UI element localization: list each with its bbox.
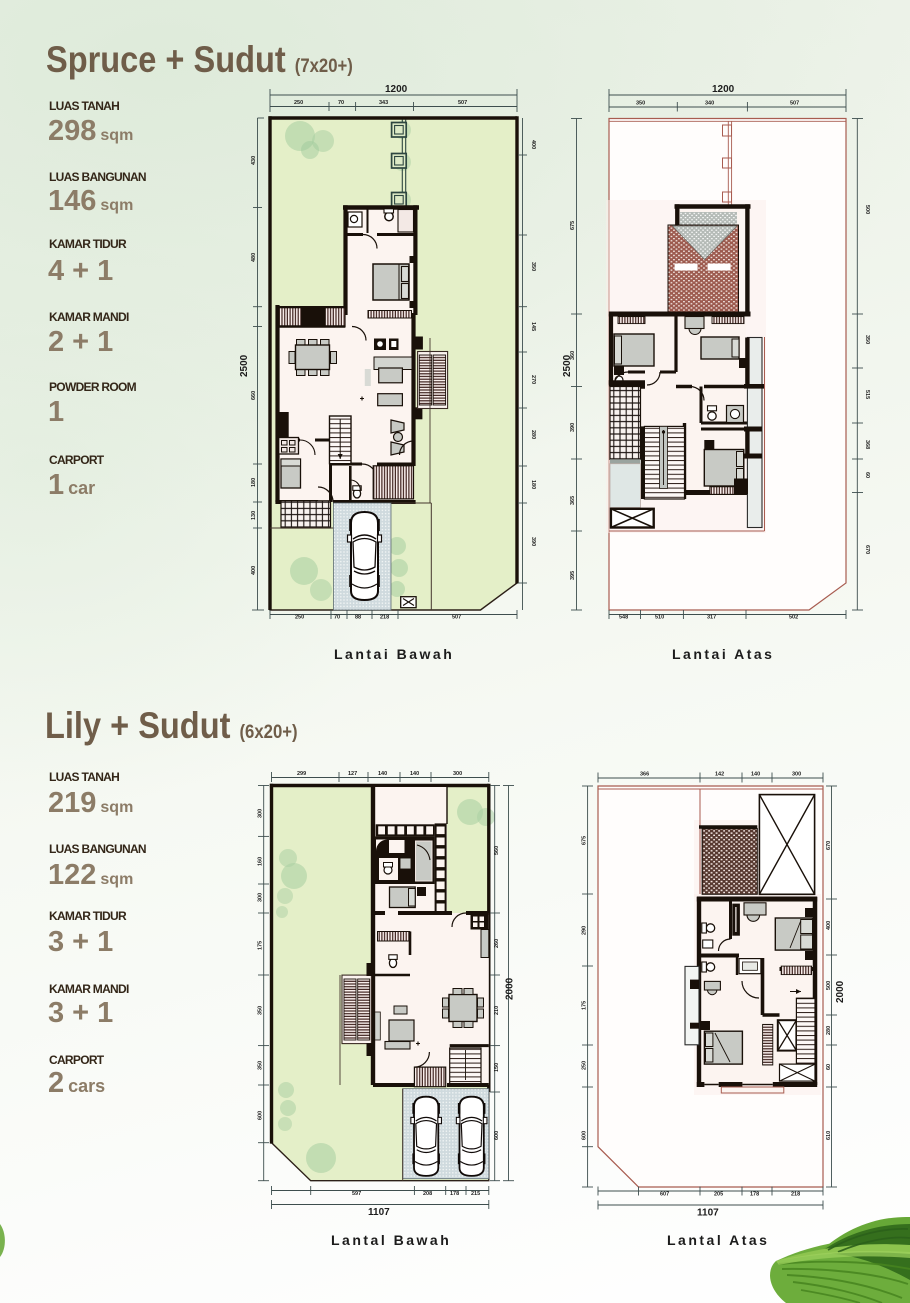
svg-text:218: 218 [380, 615, 389, 621]
svg-text:343: 343 [379, 100, 388, 106]
svg-text:366: 366 [640, 772, 649, 778]
svg-text:597: 597 [352, 1191, 361, 1197]
svg-text:140: 140 [751, 772, 760, 778]
svg-text:150: 150 [494, 1063, 500, 1072]
svg-text:600: 600 [582, 1131, 588, 1140]
svg-text:350: 350 [258, 1061, 264, 1070]
svg-text:400: 400 [530, 140, 536, 149]
svg-text:400: 400 [826, 921, 832, 930]
svg-text:480: 480 [251, 253, 257, 262]
svg-text:507: 507 [452, 615, 461, 621]
svg-text:208: 208 [423, 1191, 432, 1197]
svg-text:210: 210 [494, 1006, 500, 1015]
svg-text:675: 675 [582, 836, 588, 845]
svg-text:160: 160 [258, 857, 264, 866]
svg-text:502: 502 [789, 615, 798, 621]
svg-text:180: 180 [530, 480, 536, 489]
svg-text:215: 215 [471, 1191, 480, 1197]
svg-text:250: 250 [582, 1061, 588, 1070]
svg-text:299: 299 [297, 771, 306, 777]
svg-text:350: 350 [636, 101, 645, 107]
svg-text:142: 142 [715, 772, 724, 778]
svg-text:140: 140 [378, 771, 387, 777]
svg-text:260: 260 [494, 939, 500, 948]
svg-text:600: 600 [494, 1131, 500, 1140]
svg-text:560: 560 [494, 846, 500, 855]
svg-text:2000: 2000 [835, 980, 846, 1003]
svg-text:607: 607 [660, 1191, 669, 1197]
svg-text:270: 270 [530, 375, 536, 384]
svg-text:300: 300 [258, 809, 264, 818]
svg-text:218: 218 [791, 1191, 800, 1197]
svg-text:1200: 1200 [385, 84, 408, 95]
svg-text:1107: 1107 [368, 1207, 390, 1218]
svg-text:1107: 1107 [697, 1208, 719, 1219]
svg-text:350: 350 [530, 262, 536, 271]
svg-text:88: 88 [355, 615, 361, 621]
svg-text:70: 70 [338, 100, 344, 106]
svg-text:145: 145 [530, 322, 536, 331]
svg-text:390: 390 [530, 537, 536, 546]
svg-text:600: 600 [258, 1111, 264, 1120]
svg-text:2000: 2000 [505, 977, 516, 1000]
svg-text:300: 300 [258, 893, 264, 902]
svg-text:390: 390 [570, 423, 576, 432]
svg-text:548: 548 [619, 615, 628, 621]
svg-text:290: 290 [582, 926, 588, 935]
svg-text:350: 350 [258, 1006, 264, 1015]
svg-text:127: 127 [348, 771, 357, 777]
svg-text:175: 175 [582, 1001, 588, 1010]
svg-text:675: 675 [570, 221, 576, 230]
svg-text:340: 340 [705, 101, 714, 107]
svg-text:365: 365 [570, 496, 576, 505]
svg-text:250: 250 [295, 615, 304, 621]
svg-text:660: 660 [251, 391, 257, 400]
svg-text:280: 280 [826, 1026, 832, 1035]
svg-text:250: 250 [294, 100, 303, 106]
svg-text:400: 400 [251, 566, 257, 575]
svg-text:610: 610 [826, 1131, 832, 1140]
svg-text:180: 180 [251, 478, 257, 487]
svg-text:178: 178 [450, 1191, 459, 1197]
svg-text:1200: 1200 [712, 84, 735, 95]
svg-text:175: 175 [258, 941, 264, 950]
svg-text:430: 430 [251, 156, 257, 165]
svg-text:670: 670 [864, 545, 870, 554]
svg-text:60: 60 [826, 1064, 832, 1070]
svg-text:300: 300 [792, 772, 801, 778]
svg-text:350: 350 [864, 335, 870, 344]
svg-text:670: 670 [826, 841, 832, 850]
svg-text:300: 300 [453, 771, 462, 777]
svg-text:60: 60 [864, 472, 870, 478]
svg-text:507: 507 [458, 100, 467, 106]
svg-text:515: 515 [864, 390, 870, 399]
svg-text:360: 360 [570, 351, 576, 360]
svg-text:140: 140 [410, 771, 419, 777]
svg-text:395: 395 [570, 571, 576, 580]
svg-text:130: 130 [251, 511, 257, 520]
svg-text:205: 205 [714, 1191, 723, 1197]
svg-text:280: 280 [530, 430, 536, 439]
svg-text:2500: 2500 [239, 354, 250, 377]
svg-text:70: 70 [334, 615, 340, 621]
svg-text:500: 500 [864, 205, 870, 214]
svg-text:500: 500 [826, 981, 832, 990]
svg-text:368: 368 [864, 440, 870, 449]
svg-text:317: 317 [707, 615, 716, 621]
svg-text:178: 178 [750, 1191, 759, 1197]
svg-text:510: 510 [655, 615, 664, 621]
svg-text:507: 507 [790, 101, 799, 107]
